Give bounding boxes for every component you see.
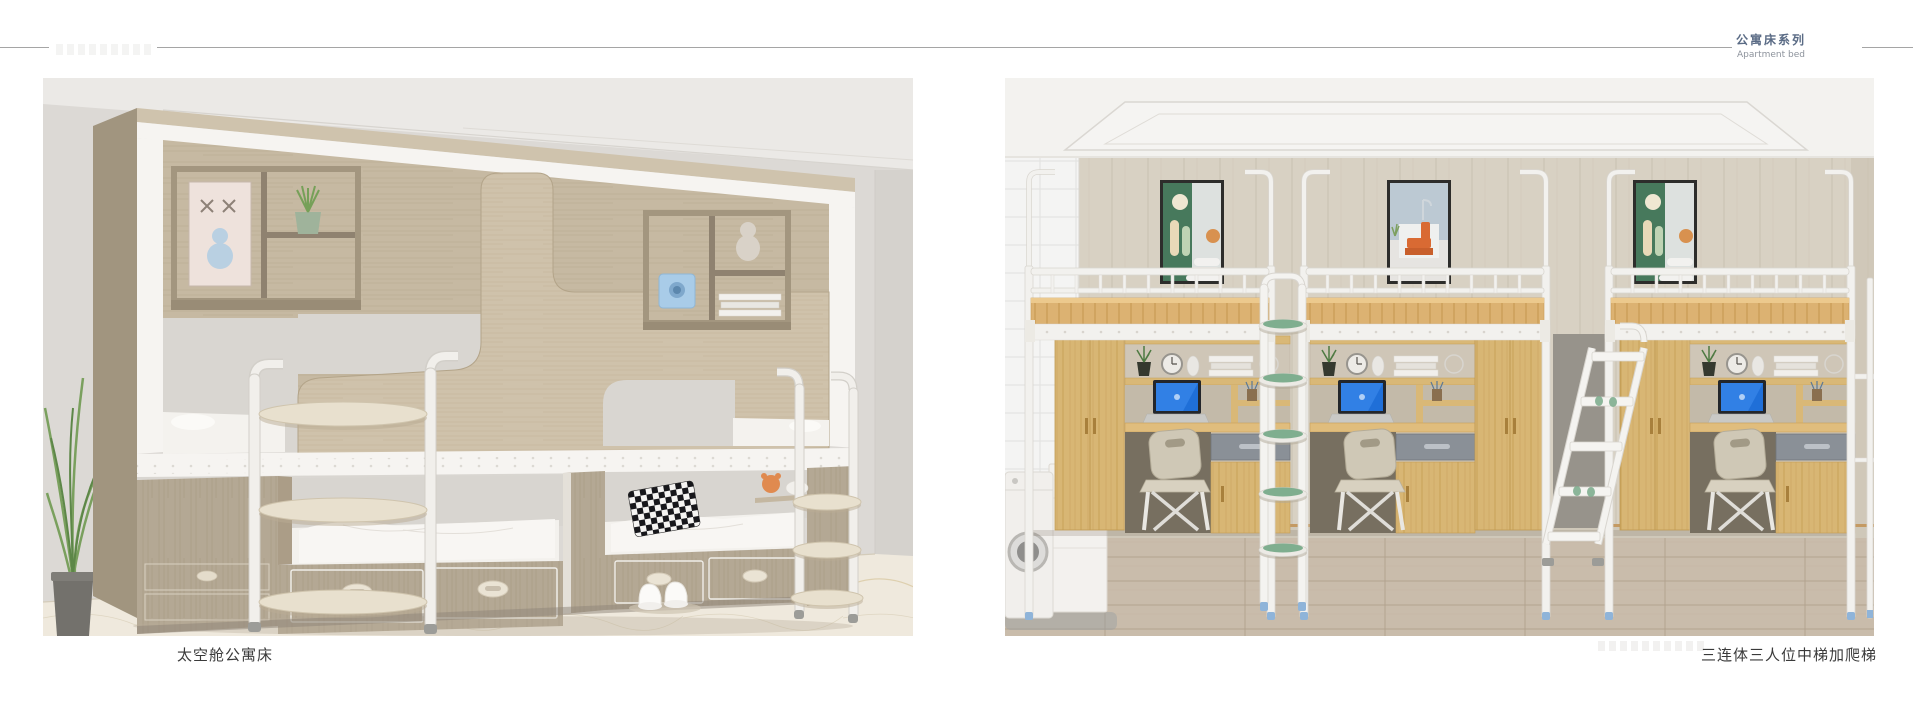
logo-watermark-bottom bbox=[1598, 641, 1708, 651]
series-subtitle: Apartment bed bbox=[1731, 50, 1811, 60]
upper-shelf-right bbox=[643, 210, 791, 330]
header-rule-right bbox=[1862, 47, 1913, 48]
header-rule-left bbox=[0, 47, 49, 48]
logo-watermark bbox=[56, 44, 151, 55]
series-title-block: 公寓床系列 Apartment bed bbox=[1731, 31, 1811, 60]
desk-station bbox=[1690, 336, 1855, 533]
space-capsule-bed-illustration bbox=[43, 78, 913, 636]
product-caption: 太空舱公寓床 bbox=[177, 644, 273, 665]
header-rule-center bbox=[157, 47, 1732, 48]
triple-loft-bed-illustration bbox=[1005, 78, 1874, 636]
catalog-page: 公寓床系列 Apartment bed bbox=[0, 0, 1919, 707]
product-caption: 三连体三人位中梯加爬梯 bbox=[1701, 644, 1877, 665]
product-photo-space-capsule-bed bbox=[43, 78, 913, 636]
series-title: 公寓床系列 bbox=[1731, 31, 1811, 48]
bunk-bed-illustration bbox=[93, 108, 855, 636]
upper-shelf-left bbox=[171, 166, 361, 310]
side-panel bbox=[1553, 334, 1613, 528]
product-photo-triple-loft-bed bbox=[1005, 78, 1874, 636]
